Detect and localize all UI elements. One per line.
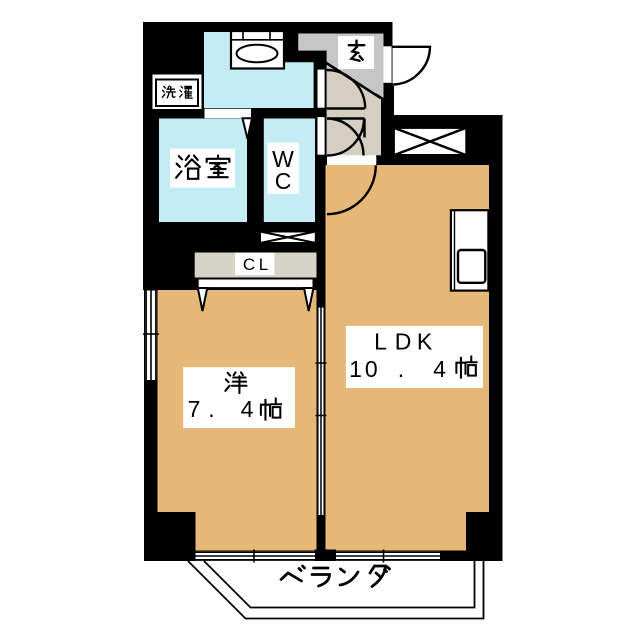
svg-text:4: 4: [241, 396, 254, 422]
svg-text:0: 0: [365, 356, 378, 382]
svg-text:.: .: [208, 396, 214, 422]
svg-text:C: C: [243, 255, 255, 274]
svg-text:L: L: [374, 329, 387, 355]
svg-text:4: 4: [433, 356, 446, 382]
svg-text:.: .: [398, 356, 404, 382]
svg-text:C: C: [275, 168, 292, 194]
svg-text:1: 1: [349, 356, 362, 382]
svg-text:L: L: [259, 255, 268, 274]
svg-text:D: D: [395, 329, 412, 355]
svg-text:7: 7: [188, 396, 201, 422]
svg-text:K: K: [417, 329, 433, 355]
